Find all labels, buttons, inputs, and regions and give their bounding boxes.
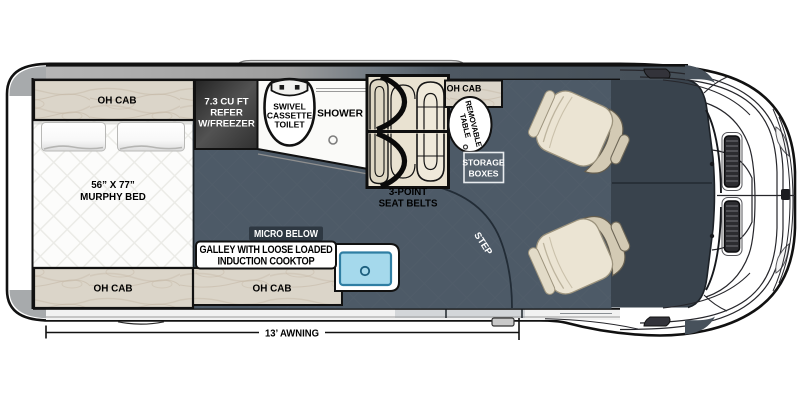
svg-text:3-POINT: 3-POINT: [389, 187, 427, 198]
svg-text:OH CAB: OH CAB: [98, 96, 137, 107]
svg-text:TOILET: TOILET: [274, 120, 305, 130]
svg-text:W/FREEZER: W/FREEZER: [198, 119, 255, 130]
svg-text:MICRO BELOW: MICRO BELOW: [254, 229, 318, 240]
svg-text:7.3 CU FT: 7.3 CU FT: [204, 97, 248, 108]
svg-text:STORAGE: STORAGE: [462, 158, 505, 168]
svg-text:MURPHY BED: MURPHY BED: [80, 192, 146, 203]
svg-text:56” X 77”: 56” X 77”: [91, 180, 135, 191]
svg-text:SHOWER: SHOWER: [317, 109, 363, 120]
svg-text:OH CAB: OH CAB: [447, 84, 482, 94]
svg-text:OH CAB: OH CAB: [253, 284, 292, 295]
svg-text:OH CAB: OH CAB: [94, 284, 133, 295]
svg-text:13’ AWNING: 13’ AWNING: [265, 329, 319, 340]
svg-text:INDUCTION COOKTOP: INDUCTION COOKTOP: [218, 256, 315, 268]
svg-text:GALLEY WITH LOOSE LOADED: GALLEY WITH LOOSE LOADED: [200, 244, 334, 256]
svg-text:REFER: REFER: [210, 108, 243, 119]
svg-text:BOXES: BOXES: [468, 169, 498, 179]
svg-text:SEAT BELTS: SEAT BELTS: [379, 199, 438, 210]
